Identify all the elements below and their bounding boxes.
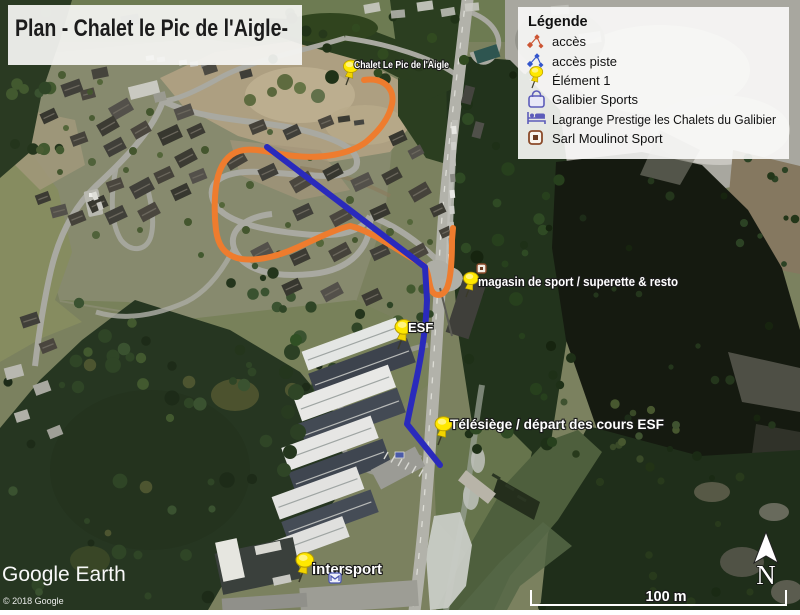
svg-text:N: N — [756, 560, 776, 590]
svg-text:ESF: ESF — [408, 320, 433, 335]
svg-text:© 2018 Google: © 2018 Google — [3, 596, 64, 606]
svg-text:Chalet Le Pic de l'Aigle: Chalet Le Pic de l'Aigle — [354, 60, 449, 71]
svg-text:intersport: intersport — [312, 561, 382, 578]
svg-text:accès piste: accès piste — [552, 54, 617, 69]
svg-text:Plan - Chalet le Pic de l'Aigl: Plan - Chalet le Pic de l'Aigle- — [15, 15, 288, 42]
svg-text:Google Earth: Google Earth — [2, 563, 126, 586]
svg-text:Lagrange Prestige les Chalets: Lagrange Prestige les Chalets du Galibie… — [552, 112, 777, 127]
svg-text:Galibier Sports: Galibier Sports — [552, 92, 638, 107]
svg-text:Télésiège / départ des cours E: Télésiège / départ des cours ESF — [450, 416, 664, 432]
svg-text:Élément 1: Élément 1 — [552, 73, 611, 88]
svg-text:100 m: 100 m — [645, 589, 686, 605]
svg-text:magasin de sport / superette &: magasin de sport / superette & resto — [478, 275, 678, 289]
svg-text:accès: accès — [552, 34, 586, 49]
svg-text:Sarl Moulinot Sport: Sarl Moulinot Sport — [552, 131, 663, 146]
svg-text:Légende: Légende — [528, 14, 588, 30]
